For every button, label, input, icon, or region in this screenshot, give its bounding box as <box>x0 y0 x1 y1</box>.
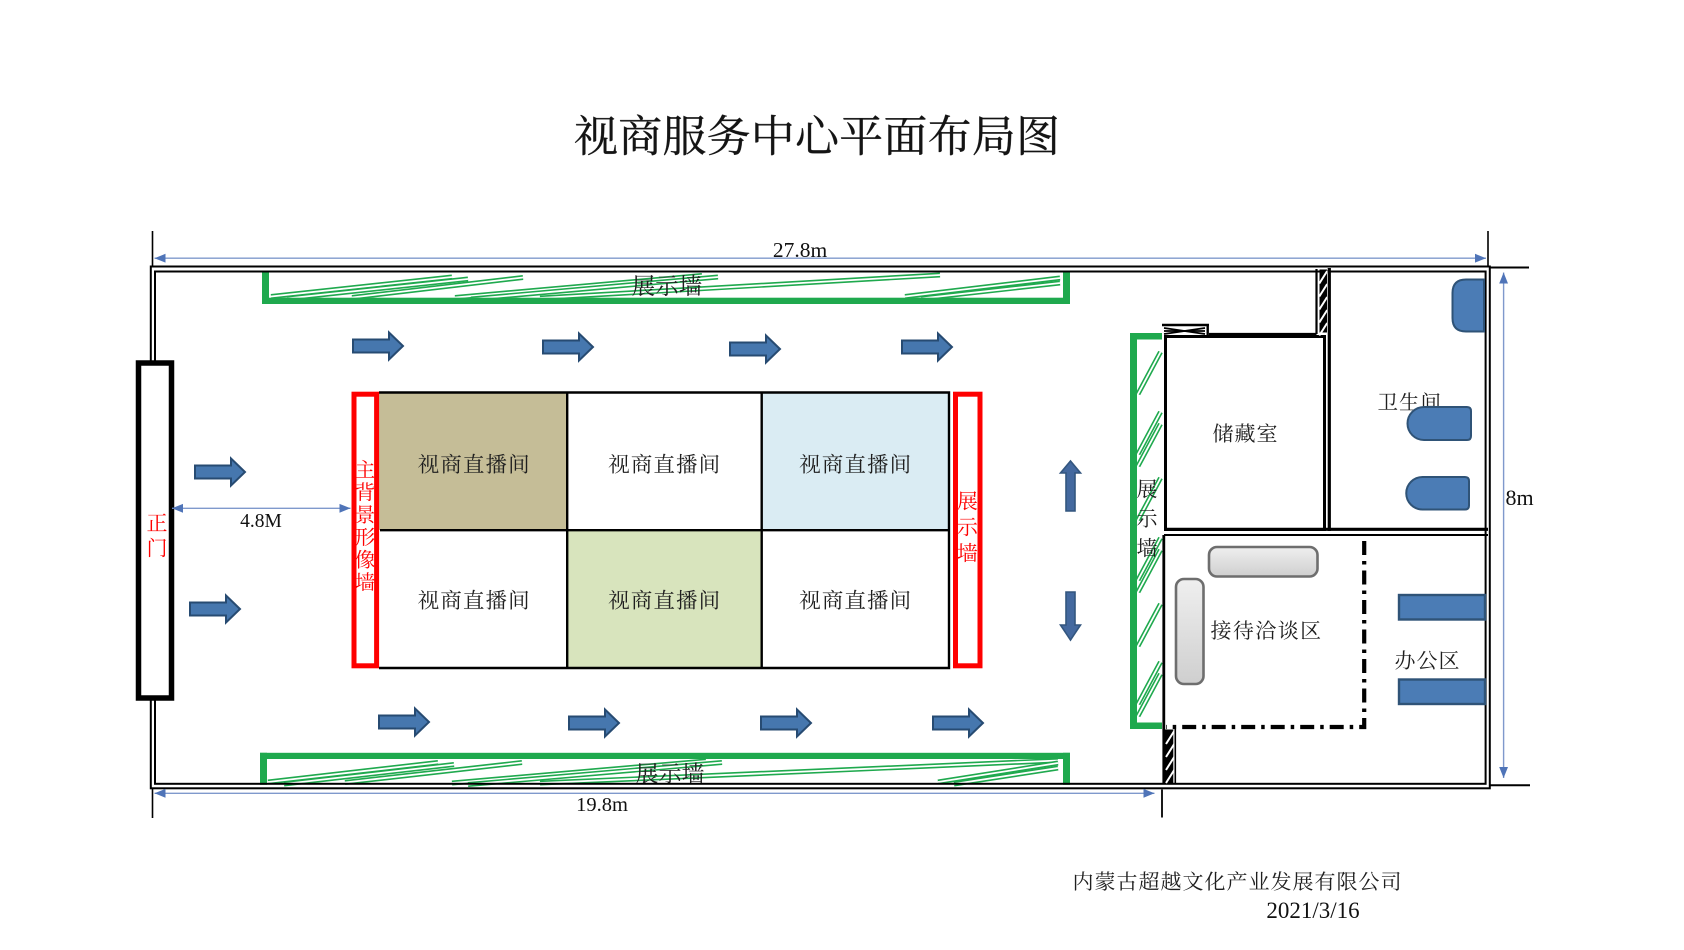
svg-text:2021/3/16: 2021/3/16 <box>1266 898 1359 923</box>
svg-text:8m: 8m <box>1506 485 1534 510</box>
svg-text:27.8m: 27.8m <box>773 238 828 262</box>
svg-text:19.8m: 19.8m <box>576 794 628 816</box>
svg-text:4.8M: 4.8M <box>240 511 282 532</box>
